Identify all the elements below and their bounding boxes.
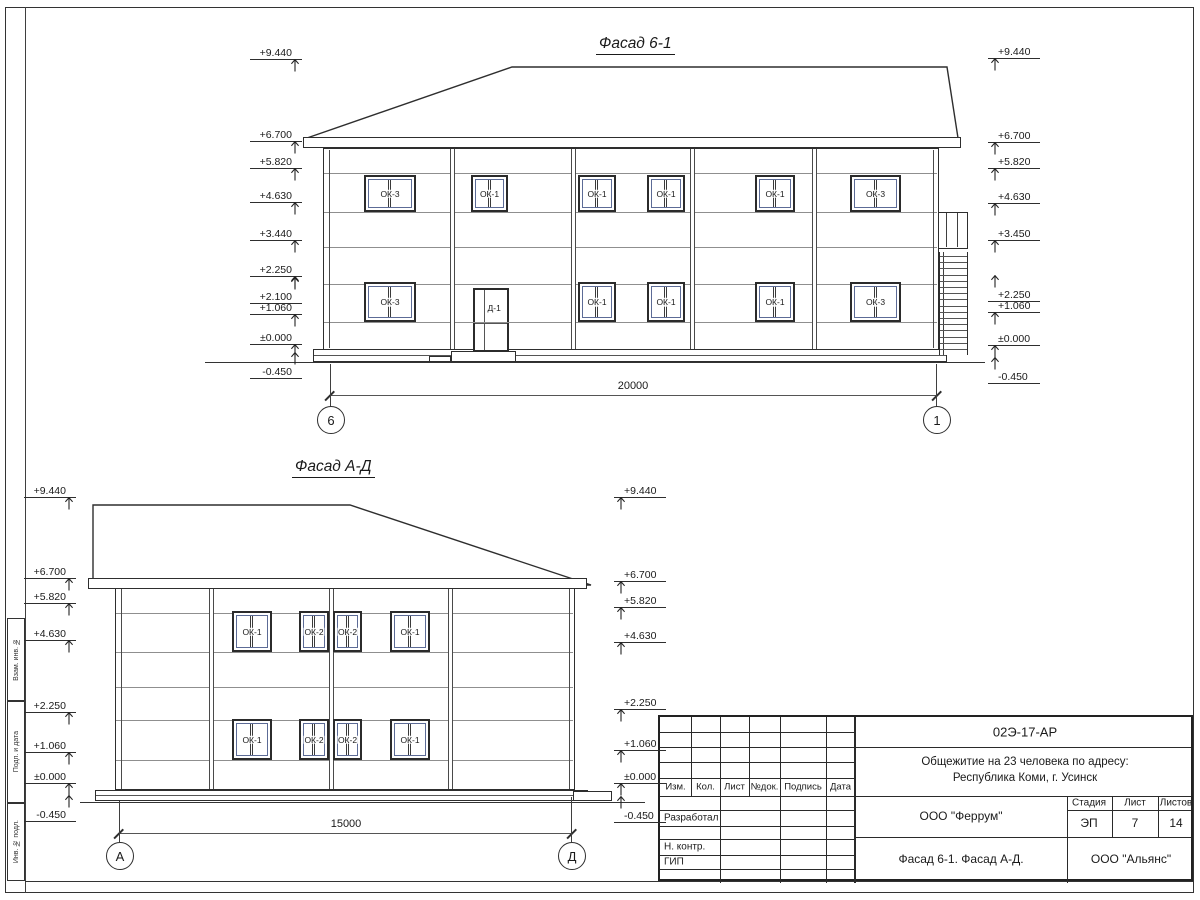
elevation-mark: +1.060 [614, 737, 666, 751]
pilaster [812, 149, 817, 349]
facade1-dim-line [329, 395, 936, 396]
ladder-rung [940, 318, 967, 319]
window-label: ОК-3 [865, 298, 886, 307]
elevation-arrow-icon [990, 58, 1000, 71]
stage-label: Стадия [1072, 798, 1106, 809]
facade1-eave [303, 137, 961, 148]
door-mullion [484, 290, 485, 350]
elevation-arrow-icon [290, 168, 300, 181]
door-label: Д-1 [487, 304, 502, 313]
elevation-mark: +1.060 [988, 299, 1040, 313]
sheet-number: 7 [1132, 816, 1139, 830]
titleblock-line [1067, 810, 1191, 811]
elevation-arrow-icon [990, 275, 1000, 288]
facade-window: ОК-2 [333, 611, 362, 652]
elevation-mark: +4.630 [24, 627, 76, 641]
elevation-value: -0.450 [262, 367, 292, 378]
elevation-arrow-icon [290, 352, 300, 365]
elevation-value: +2.250 [260, 265, 292, 276]
axis-leader [119, 801, 120, 842]
elevation-mark: +2.250 [250, 263, 302, 277]
ladder-rung [940, 287, 967, 288]
facade2-ground-line [80, 802, 645, 803]
window-label: ОК-1 [586, 298, 607, 307]
elevation-mark: +6.700 [24, 565, 76, 579]
facade-window: ОК-3 [850, 175, 901, 212]
elevation-arrow-icon [616, 607, 626, 620]
titleblock-line [660, 810, 855, 811]
elevation-value: +1.060 [998, 301, 1030, 312]
corner-pilaster-line [569, 589, 570, 789]
facade2-plinth-line [96, 795, 587, 796]
elevation-mark: +9.440 [250, 46, 302, 60]
elevation-value: +4.630 [624, 631, 656, 642]
elevation-value: +3.440 [260, 229, 292, 240]
elevation-mark: -0.450 [614, 809, 666, 823]
titleblock-col-header: №док. [751, 782, 779, 793]
elevation-value: +9.440 [260, 48, 292, 59]
title-block: 02Э-17-АР Общежитие на 23 человека по ад… [658, 715, 1193, 881]
titleblock-line [660, 762, 855, 763]
elevation-value: +6.700 [260, 130, 292, 141]
elevation-mark: +1.060 [250, 301, 302, 315]
elevation-arrow-icon [616, 750, 626, 763]
ladder-rung [940, 324, 967, 325]
corner-pilaster-line [121, 589, 122, 789]
facade1-dim-value: 20000 [618, 380, 649, 392]
facade1-plinth-line [314, 355, 946, 356]
facade-window: ОК-2 [299, 611, 329, 652]
doc-code: 02Э-17-АР [993, 725, 1057, 740]
elevation-arrow-icon [290, 277, 300, 290]
facade-window: ОК-1 [232, 611, 272, 652]
facade-window: ОК-1 [755, 175, 795, 212]
titleblock-role-label: Н. контр. [664, 842, 705, 853]
facade1-ground-line [205, 362, 985, 363]
facade-window: ОК-2 [299, 719, 329, 760]
titleblock-line [660, 839, 855, 840]
facade-window: ОК-1 [647, 175, 685, 212]
window-label: ОК-2 [337, 627, 358, 636]
window-label: ОК-1 [764, 298, 785, 307]
margin-box-inv: Инв. № подл. [7, 803, 25, 881]
pilaster [571, 149, 576, 349]
elevation-value: +2.250 [624, 698, 656, 709]
ladder-rung [940, 293, 967, 294]
elevation-mark: -0.450 [250, 365, 302, 379]
elevation-mark: +9.440 [988, 45, 1040, 59]
elevation-value: ±0.000 [260, 333, 292, 344]
axis-bubble-1: 1 [923, 406, 951, 434]
margin-box-zam: Взам. инв. № [7, 618, 25, 701]
titleblock-line [660, 855, 855, 856]
window-label: ОК-1 [764, 189, 785, 198]
drawing-sheet: Взам. инв. № Подп. и дата Инв. № подл. Ф… [0, 0, 1200, 900]
elevation-value: +6.700 [998, 131, 1030, 142]
elevation-arrow-icon [990, 168, 1000, 181]
margin-label: Инв. № подл. [13, 820, 20, 863]
elevation-arrow-icon [616, 581, 626, 594]
corner-pilaster-line [933, 150, 934, 348]
axis-bubble-6: 6 [317, 406, 345, 434]
facade-window: ОК-1 [755, 282, 795, 322]
elevation-arrow-icon [990, 240, 1000, 253]
elevation-mark: +6.700 [988, 129, 1040, 143]
elevation-value: +4.630 [260, 191, 292, 202]
titleblock-line [1112, 796, 1113, 837]
elevation-arrow-icon [990, 142, 1000, 155]
elevation-arrow-icon [290, 59, 300, 72]
elevation-mark: ±0.000 [24, 770, 76, 784]
elevation-arrow-icon [990, 357, 1000, 370]
facade1-porch [451, 351, 516, 362]
elevation-value: ±0.000 [624, 772, 656, 783]
titleblock-col-header: Дата [830, 782, 851, 793]
facade-window: ОК-1 [647, 282, 685, 322]
window-label: ОК-1 [241, 627, 262, 636]
window-label: ОК-3 [379, 189, 400, 198]
elevation-arrow-icon [64, 795, 74, 808]
elevation-arrow-icon [616, 642, 626, 655]
elevation-value: -0.450 [36, 810, 66, 821]
elevation-mark: +4.630 [988, 190, 1040, 204]
elevation-value: ±0.000 [34, 772, 66, 783]
stair-cabin-divider [946, 213, 947, 247]
panel-joint-line [324, 173, 937, 174]
ladder-rung [940, 330, 967, 331]
elevation-arrow-icon [616, 783, 626, 796]
titleblock-line [720, 717, 721, 883]
stage-value: ЭП [1080, 816, 1097, 830]
window-label: ОК-1 [655, 189, 676, 198]
window-label: ОК-1 [479, 189, 500, 198]
elevation-value: +4.630 [998, 192, 1030, 203]
door: Д-1 [473, 288, 509, 352]
elevation-mark: ±0.000 [988, 332, 1040, 346]
titleblock-line [660, 796, 1191, 797]
titleblock-line [660, 826, 855, 827]
elevation-value: +5.820 [34, 592, 66, 603]
panel-joint-line [116, 652, 573, 653]
door-transom-line [475, 323, 507, 324]
margin-box-podp: Подп. и дата [7, 701, 25, 803]
axis-bubble-a: А [106, 842, 134, 870]
elevation-value: +5.820 [260, 157, 292, 168]
elevation-arrow-icon [290, 202, 300, 215]
elevation-mark: +1.060 [24, 739, 76, 753]
sheets-total: 14 [1169, 816, 1182, 830]
elevation-mark: +4.630 [250, 189, 302, 203]
elevation-mark: ±0.000 [250, 331, 302, 345]
stair-cabin [938, 212, 968, 249]
pilaster [448, 589, 453, 789]
project-name-line2: Республика Коми, г. Усинск [953, 772, 1097, 784]
window-label: ОК-1 [399, 735, 420, 744]
frame-inner-left-line [25, 7, 26, 893]
elevation-arrow-icon [290, 240, 300, 253]
project-name-line1: Общежитие на 23 человека по адресу: [921, 756, 1128, 768]
axis-leader [936, 364, 937, 407]
frame-inner-bottom-line [25, 881, 1193, 882]
fire-ladder [939, 252, 968, 355]
elevation-mark: +5.820 [988, 155, 1040, 169]
elevation-value: +1.060 [624, 739, 656, 750]
elevation-mark: +6.700 [250, 128, 302, 142]
facade-window: ОК-1 [578, 282, 616, 322]
elevation-arrow-icon [64, 640, 74, 653]
facade2-title: Фасад А-Д [292, 458, 375, 478]
elevation-arrow-icon [64, 603, 74, 616]
titleblock-line [660, 747, 1191, 748]
elevation-arrow-icon [990, 203, 1000, 216]
elevation-arrow-icon [290, 141, 300, 154]
titleblock-col-header: Лист [724, 782, 745, 793]
titleblock-line [854, 717, 856, 883]
pilaster [209, 589, 214, 789]
elevation-value: +6.700 [34, 567, 66, 578]
elevation-arrow-icon [616, 796, 626, 809]
facade-window: ОК-1 [578, 175, 616, 212]
stair-cabin-divider [957, 213, 958, 247]
elevation-mark: +3.440 [250, 227, 302, 241]
panel-joint-line [116, 760, 573, 761]
titleblock-line [660, 732, 855, 733]
elevation-mark: -0.450 [24, 808, 76, 822]
titleblock-role-label: Разработал [664, 813, 718, 824]
ladder-rung [940, 343, 967, 344]
titleblock-col-header: Кол. [696, 782, 715, 793]
elevation-value: +1.060 [34, 741, 66, 752]
elevation-mark: +4.630 [614, 629, 666, 643]
facade-window: ОК-1 [390, 611, 430, 652]
elevation-value: +6.700 [624, 570, 656, 581]
elevation-value: +5.820 [998, 157, 1030, 168]
elevation-mark: +2.250 [614, 696, 666, 710]
panel-joint-line [324, 247, 937, 248]
elevation-value: +9.440 [34, 486, 66, 497]
ladder-rung [940, 275, 967, 276]
elevation-mark: ±0.000 [614, 770, 666, 784]
elevation-value: -0.450 [624, 811, 654, 822]
ladder-rung [940, 262, 967, 263]
elevation-arrow-icon [990, 312, 1000, 325]
panel-joint-line [324, 322, 937, 323]
elevation-mark: +5.820 [24, 590, 76, 604]
design-org: ООО "Феррум" [920, 809, 1003, 823]
window-label: ОК-1 [241, 735, 262, 744]
titleblock-col-header: Изм. [665, 782, 685, 793]
window-label: ОК-2 [303, 735, 324, 744]
window-label: ОК-1 [655, 298, 676, 307]
window-label: ОК-3 [379, 298, 400, 307]
window-label: ОК-2 [337, 735, 358, 744]
ladder-rung [940, 312, 967, 313]
elevation-value: +3.450 [998, 229, 1030, 240]
elevation-arrow-icon [616, 709, 626, 722]
window-label: ОК-1 [399, 627, 420, 636]
titleblock-line [780, 717, 781, 883]
elevation-value: +9.440 [624, 486, 656, 497]
elevation-mark: +9.440 [24, 484, 76, 498]
titleblock-line [660, 869, 855, 870]
titleblock-line [855, 837, 1191, 838]
elevation-value: +9.440 [998, 47, 1030, 58]
titleblock-col-header: Подпись [784, 782, 822, 793]
facade-window: ОК-3 [364, 282, 416, 322]
facade-window: ОК-2 [333, 719, 362, 760]
elevation-value: -0.450 [998, 372, 1028, 383]
ladder-rung [940, 256, 967, 257]
facade2-dim-value: 15000 [331, 818, 362, 830]
ladder-rung [940, 299, 967, 300]
elevation-value: +4.630 [34, 629, 66, 640]
elevation-mark: +5.820 [614, 594, 666, 608]
panel-joint-line [324, 212, 937, 213]
axis-leader [330, 364, 331, 407]
margin-label: Подп. и дата [13, 731, 20, 772]
elevation-mark: +3.450 [988, 227, 1040, 241]
window-label: ОК-2 [303, 627, 324, 636]
pilaster [450, 149, 455, 349]
elevation-arrow-icon [64, 497, 74, 510]
titleblock-role-label: ГИП [664, 857, 684, 868]
sheets-label: Листов [1160, 798, 1193, 809]
elevation-arrow-icon [616, 497, 626, 510]
facade1-title: Фасад 6-1 [596, 35, 675, 55]
elevation-mark: +5.820 [250, 155, 302, 169]
elevation-mark: -0.450 [988, 370, 1040, 384]
facade-window: ОК-1 [390, 719, 430, 760]
elevation-value: +2.250 [34, 701, 66, 712]
elevation-value: ±0.000 [998, 334, 1030, 345]
sheet-label: Лист [1124, 798, 1146, 809]
elevation-mark: +9.440 [614, 484, 666, 498]
elevation-mark: +6.700 [614, 568, 666, 582]
titleblock-line [660, 778, 855, 779]
facade-window: ОК-1 [232, 719, 272, 760]
facade-window: ОК-3 [364, 175, 416, 212]
elevation-arrow-icon [290, 314, 300, 327]
elevation-mark: +2.250 [24, 699, 76, 713]
titleblock-line [826, 717, 827, 883]
facade2-plinth-ext [573, 791, 612, 801]
elevation-value: +1.060 [260, 303, 292, 314]
ladder-rung [940, 306, 967, 307]
panel-joint-line [116, 687, 573, 688]
elevation-value: +5.820 [624, 596, 656, 607]
ladder-rung [940, 281, 967, 282]
contractor-org: ООО "Альянс" [1091, 852, 1171, 866]
ladder-rung [940, 268, 967, 269]
titleblock-line [1158, 796, 1159, 837]
ladder-rung [940, 337, 967, 338]
window-label: ОК-3 [865, 189, 886, 198]
margin-label: Взам. инв. № [13, 638, 20, 681]
elevation-arrow-icon [64, 712, 74, 725]
window-label: ОК-1 [586, 189, 607, 198]
pilaster [690, 149, 695, 349]
axis-bubble-d: Д [558, 842, 586, 870]
elevation-arrow-icon [64, 752, 74, 765]
facade2-dim-line [118, 833, 571, 834]
facade-window: ОК-1 [471, 175, 508, 212]
corner-pilaster-line [329, 150, 330, 348]
axis-leader [571, 797, 572, 842]
facade-window: ОК-3 [850, 282, 901, 322]
titleblock-line [691, 717, 692, 796]
ladder-rung [940, 349, 967, 350]
sheet-title: Фасад 6-1. Фасад А-Д. [898, 852, 1023, 866]
